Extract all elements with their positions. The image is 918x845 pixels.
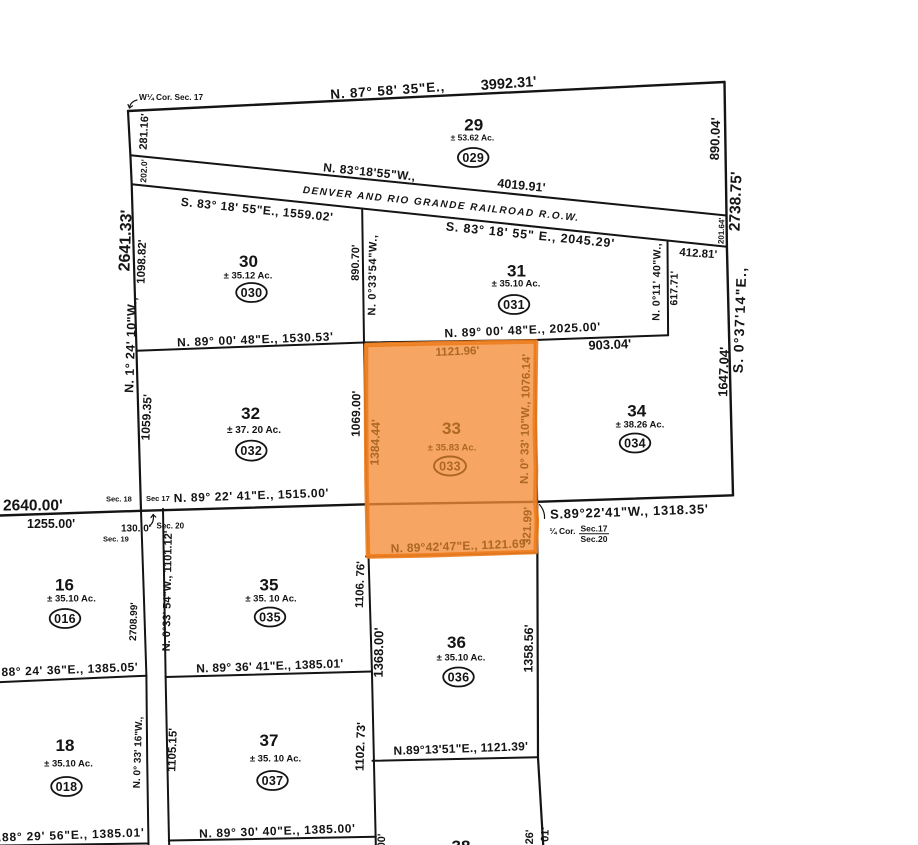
svg-text:2640.00': 2640.00'	[3, 498, 63, 515]
svg-text:130. 0': 130. 0'	[121, 524, 151, 535]
svg-text:1121.96': 1121.96'	[435, 345, 479, 359]
svg-text:38: 38	[452, 837, 471, 845]
svg-text:202.0': 202.0'	[138, 159, 149, 183]
svg-text:34: 34	[627, 402, 646, 421]
svg-text:029: 029	[462, 151, 484, 165]
svg-text:1098.82': 1098.82'	[136, 239, 150, 284]
svg-text:S.89°22'41"W., 1318.35': S.89°22'41"W., 1318.35'	[550, 501, 709, 522]
svg-text:034: 034	[624, 436, 646, 450]
svg-text:890.70': 890.70'	[350, 244, 363, 281]
svg-text:Sec.17: Sec.17	[581, 524, 608, 534]
svg-text:± 35. 10 Ac.: ± 35. 10 Ac.	[245, 594, 296, 605]
svg-text:1059.35': 1059.35'	[138, 394, 154, 441]
svg-text:± 35. 10 Ac.: ± 35. 10 Ac.	[250, 754, 301, 765]
svg-text:36: 36	[447, 633, 466, 652]
svg-text:± 35.10 Ac.: ± 35.10 Ac.	[44, 759, 93, 770]
svg-text:S. 83° 18' 55" E., 2045.29': S. 83° 18' 55" E., 2045.29'	[445, 219, 615, 250]
svg-text:N. 89° 22' 41"E., 1515.00': N. 89° 22' 41"E., 1515.00'	[174, 486, 330, 505]
svg-text:1384.44': 1384.44'	[367, 419, 383, 466]
svg-text:1106. 76': 1106. 76'	[354, 561, 368, 609]
svg-text:26': 26'	[524, 829, 536, 844]
svg-text:Sec. 18: Sec. 18	[106, 495, 132, 504]
svg-text:35: 35	[260, 576, 279, 595]
svg-text:± 35.10 Ac.: ± 35.10 Ac.	[492, 279, 541, 290]
svg-text:2708.99': 2708.99'	[128, 602, 140, 641]
svg-text:Sec.20: Sec.20	[581, 534, 608, 544]
svg-text:033: 033	[439, 459, 461, 473]
svg-text:N. 0°11' 40"W.,: N. 0°11' 40"W.,	[650, 243, 663, 321]
svg-text:Sec. 20: Sec. 20	[157, 522, 185, 531]
svg-text:018: 018	[56, 780, 78, 794]
svg-text:281.16': 281.16'	[138, 113, 152, 150]
svg-text:1255.00': 1255.00'	[27, 517, 75, 531]
svg-text:.88° 29' 56"E., 1385.01': .88° 29' 56"E., 1385.01'	[0, 825, 145, 844]
svg-text:00': 00'	[376, 833, 388, 845]
svg-text:± 35.10 Ac.: ± 35.10 Ac.	[437, 653, 486, 664]
svg-text:N. 0° 33' 10"W., 1076.14': N. 0° 33' 10"W., 1076.14'	[519, 354, 533, 484]
svg-text:1105.15': 1105.15'	[166, 728, 180, 772]
svg-text:N. 0° 33' 16"W.,: N. 0° 33' 16"W.,	[132, 716, 146, 788]
svg-text:201.64': 201.64'	[717, 217, 727, 244]
svg-text:± 53.62 Ac.: ± 53.62 Ac.	[451, 133, 495, 143]
svg-text:037: 037	[262, 774, 284, 788]
svg-text:412.81': 412.81'	[679, 247, 718, 262]
svg-text:S. 0°37'14"E.,: S. 0°37'14"E.,	[730, 266, 750, 373]
svg-text:032: 032	[240, 444, 262, 458]
svg-text:890.04': 890.04'	[707, 117, 723, 160]
svg-text:1358.56': 1358.56'	[521, 624, 536, 672]
svg-text:N. 0°33' 54"W., 1101.12': N. 0°33' 54"W., 1101.12'	[161, 530, 175, 651]
svg-text:1069.00': 1069.00'	[349, 390, 364, 437]
svg-text:± 35.12 Ac.: ± 35.12 Ac.	[224, 271, 273, 282]
svg-text:035: 035	[259, 610, 281, 624]
svg-text:± 35.10 Ac.: ± 35.10 Ac.	[47, 594, 96, 605]
svg-text:036: 036	[448, 670, 470, 684]
svg-text:± 37. 20 Ac.: ± 37. 20 Ac.	[227, 425, 281, 436]
svg-text:N. 89° 00' 48"E., 1530.53': N. 89° 00' 48"E., 1530.53'	[177, 330, 334, 350]
svg-text:617.71': 617.71'	[668, 271, 681, 306]
svg-text:18: 18	[56, 736, 75, 755]
svg-text:903.04': 903.04'	[588, 336, 631, 353]
svg-text:33: 33	[442, 419, 461, 438]
svg-text:01': 01'	[539, 827, 551, 842]
svg-text:N.89°13'51"E., 1121.39': N.89°13'51"E., 1121.39'	[393, 739, 528, 758]
svg-text:1102. 73': 1102. 73'	[352, 722, 368, 772]
svg-text:016: 016	[54, 612, 76, 626]
svg-text:37: 37	[260, 731, 279, 750]
svg-text:Sec. 19: Sec. 19	[103, 535, 129, 544]
svg-text:030: 030	[241, 286, 263, 300]
svg-text:031: 031	[503, 298, 525, 312]
svg-text:¼ Cor.: ¼ Cor.	[550, 526, 576, 536]
svg-text:32: 32	[241, 404, 260, 423]
svg-text:± 38.26 Ac.: ± 38.26 Ac.	[616, 420, 665, 431]
svg-text:S. 83° 18' 55"E., 1559.02': S. 83° 18' 55"E., 1559.02'	[180, 195, 334, 224]
svg-text:16: 16	[55, 576, 74, 595]
svg-text:2738.75': 2738.75'	[726, 171, 745, 231]
svg-text:30: 30	[239, 252, 258, 271]
svg-text:N. 89° 00' 48"E., 2025.00': N. 89° 00' 48"E., 2025.00'	[444, 320, 601, 341]
svg-text:2641.33': 2641.33'	[116, 209, 135, 271]
svg-text:W¼ Cor. Sec. 17: W¼ Cor. Sec. 17	[139, 92, 203, 102]
svg-text:1368.00': 1368.00'	[371, 627, 387, 677]
svg-text:Sec 17: Sec 17	[146, 494, 170, 503]
svg-text:1647.04': 1647.04'	[715, 347, 732, 398]
svg-text:± 35.83 Ac.: ± 35.83 Ac.	[428, 443, 477, 454]
svg-text:N. 0°33'54"W.,: N. 0°33'54"W.,	[366, 234, 379, 315]
